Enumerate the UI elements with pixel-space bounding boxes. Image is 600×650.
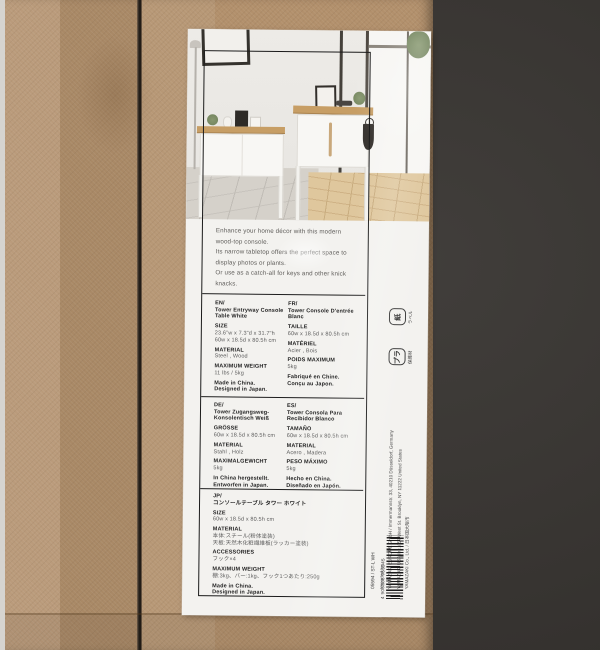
spec-line: Entworfen in Japan. bbox=[213, 482, 286, 489]
photo-backdrop: Enhance your home décor with this modern… bbox=[0, 0, 600, 650]
recycle-mark-plastic: プラ 保護材 bbox=[388, 347, 422, 367]
spec-line: Table White bbox=[215, 314, 288, 321]
recycle-plastic-icon: プラ bbox=[388, 349, 405, 366]
spec-line: POIDS MAXIMUM bbox=[287, 358, 360, 365]
spec-section-en-fr: EN/Tower Entryway ConsoleTable WhiteSIZE… bbox=[214, 300, 367, 395]
barcode: 4 903208 055945 bbox=[380, 533, 407, 599]
recycle-plastic-caption: 保護材 bbox=[407, 347, 413, 367]
spec-section-de-es: DE/Tower Zugangsweg-Konsolentisch WeißGR… bbox=[213, 402, 366, 490]
spec-line: Diseñado en Japón. bbox=[286, 483, 359, 490]
spec-line: Conçu au Japon. bbox=[287, 381, 360, 388]
section-divider bbox=[201, 396, 364, 399]
spec-line: Recibidor Blanco bbox=[287, 416, 360, 423]
label-photo bbox=[186, 29, 431, 222]
section-divider bbox=[202, 293, 365, 296]
spec-line: PESO MÁXIMO bbox=[286, 460, 359, 467]
spec-line: フック×4 bbox=[212, 556, 362, 564]
spec-line: Acier , Bois bbox=[288, 348, 361, 355]
recycle-paper-icon: 紙 bbox=[389, 309, 406, 326]
product-description: Enhance your home décor with this modern… bbox=[215, 226, 364, 291]
spec-column-es: ES/Tower Consola ParaRecibidor BlancoTAM… bbox=[286, 403, 360, 490]
box-seam bbox=[137, 0, 142, 650]
spec-line: Steel , Wood bbox=[215, 354, 288, 361]
description-line: Or use as a catch-all for keys and other… bbox=[215, 269, 363, 281]
spec-line: 11 lbs / 5kg bbox=[214, 370, 287, 377]
spec-column-fr: FR/Tower Console D'entréeBlancTAILLE60w … bbox=[287, 301, 361, 395]
box-bottom-shade bbox=[5, 615, 433, 650]
recycle-plastic-glyph: プラ bbox=[392, 350, 402, 364]
spec-line: 60w x 18.5d x 80.5h cm bbox=[288, 331, 361, 338]
spec-line: MAXIMALGEWICHT bbox=[213, 459, 286, 466]
spec-line: 60w x 18.5d x 80.5h cm bbox=[215, 337, 288, 344]
spec-line: Stahl , Holz bbox=[214, 449, 287, 456]
spec-line: 5kg bbox=[286, 466, 359, 473]
spec-line: 5kg bbox=[213, 465, 286, 472]
recycle-paper-caption: ラベル bbox=[408, 307, 414, 327]
spec-line: Acero , Madera bbox=[287, 450, 360, 457]
product-label: Enhance your home décor with this modern… bbox=[182, 29, 431, 618]
spec-line: 60w x 18.5d x 80.5h cm bbox=[213, 517, 363, 525]
photo-glare bbox=[186, 29, 431, 222]
spec-line: Designed in Japan. bbox=[212, 590, 362, 598]
spec-line: Designed in Japan. bbox=[214, 387, 287, 394]
cardboard-box: Enhance your home décor with this modern… bbox=[5, 0, 433, 650]
spec-line: Konsolentisch Weiß bbox=[214, 416, 287, 423]
spec-line: 60w x 18.5d x 80.5h cm bbox=[214, 432, 287, 439]
spec-section-jp: JP/コンソールテーブル タワー ホワイトSIZE60w x 18.5d x 8… bbox=[212, 493, 365, 598]
spec-line: 棚:3kg、バー:1kg、フック1つあたり:250g bbox=[212, 573, 362, 581]
recycle-mark-paper: 紙 ラベル bbox=[389, 307, 423, 327]
spec-column-de: DE/Tower Zugangsweg-Konsolentisch WeißGR… bbox=[213, 402, 287, 489]
spec-line: Blanc bbox=[288, 314, 361, 321]
recycle-paper-glyph: 紙 bbox=[392, 314, 402, 321]
spec-line: 60w x 18.5d x 80.5h cm bbox=[287, 433, 360, 440]
spec-column-en: EN/Tower Entryway ConsoleTable WhiteSIZE… bbox=[214, 300, 288, 394]
spec-line: 天板:天然木化粧繊維板(ラッカー塗装) bbox=[213, 540, 363, 548]
spec-line: コンソールテーブル タワー ホワイト bbox=[213, 500, 363, 508]
spec-line: 5kg bbox=[287, 364, 360, 371]
description-line: knacks. bbox=[215, 279, 363, 291]
barcode-bars bbox=[386, 535, 404, 599]
spec-column-jp: JP/コンソールテーブル タワー ホワイトSIZE60w x 18.5d x 8… bbox=[212, 493, 363, 598]
